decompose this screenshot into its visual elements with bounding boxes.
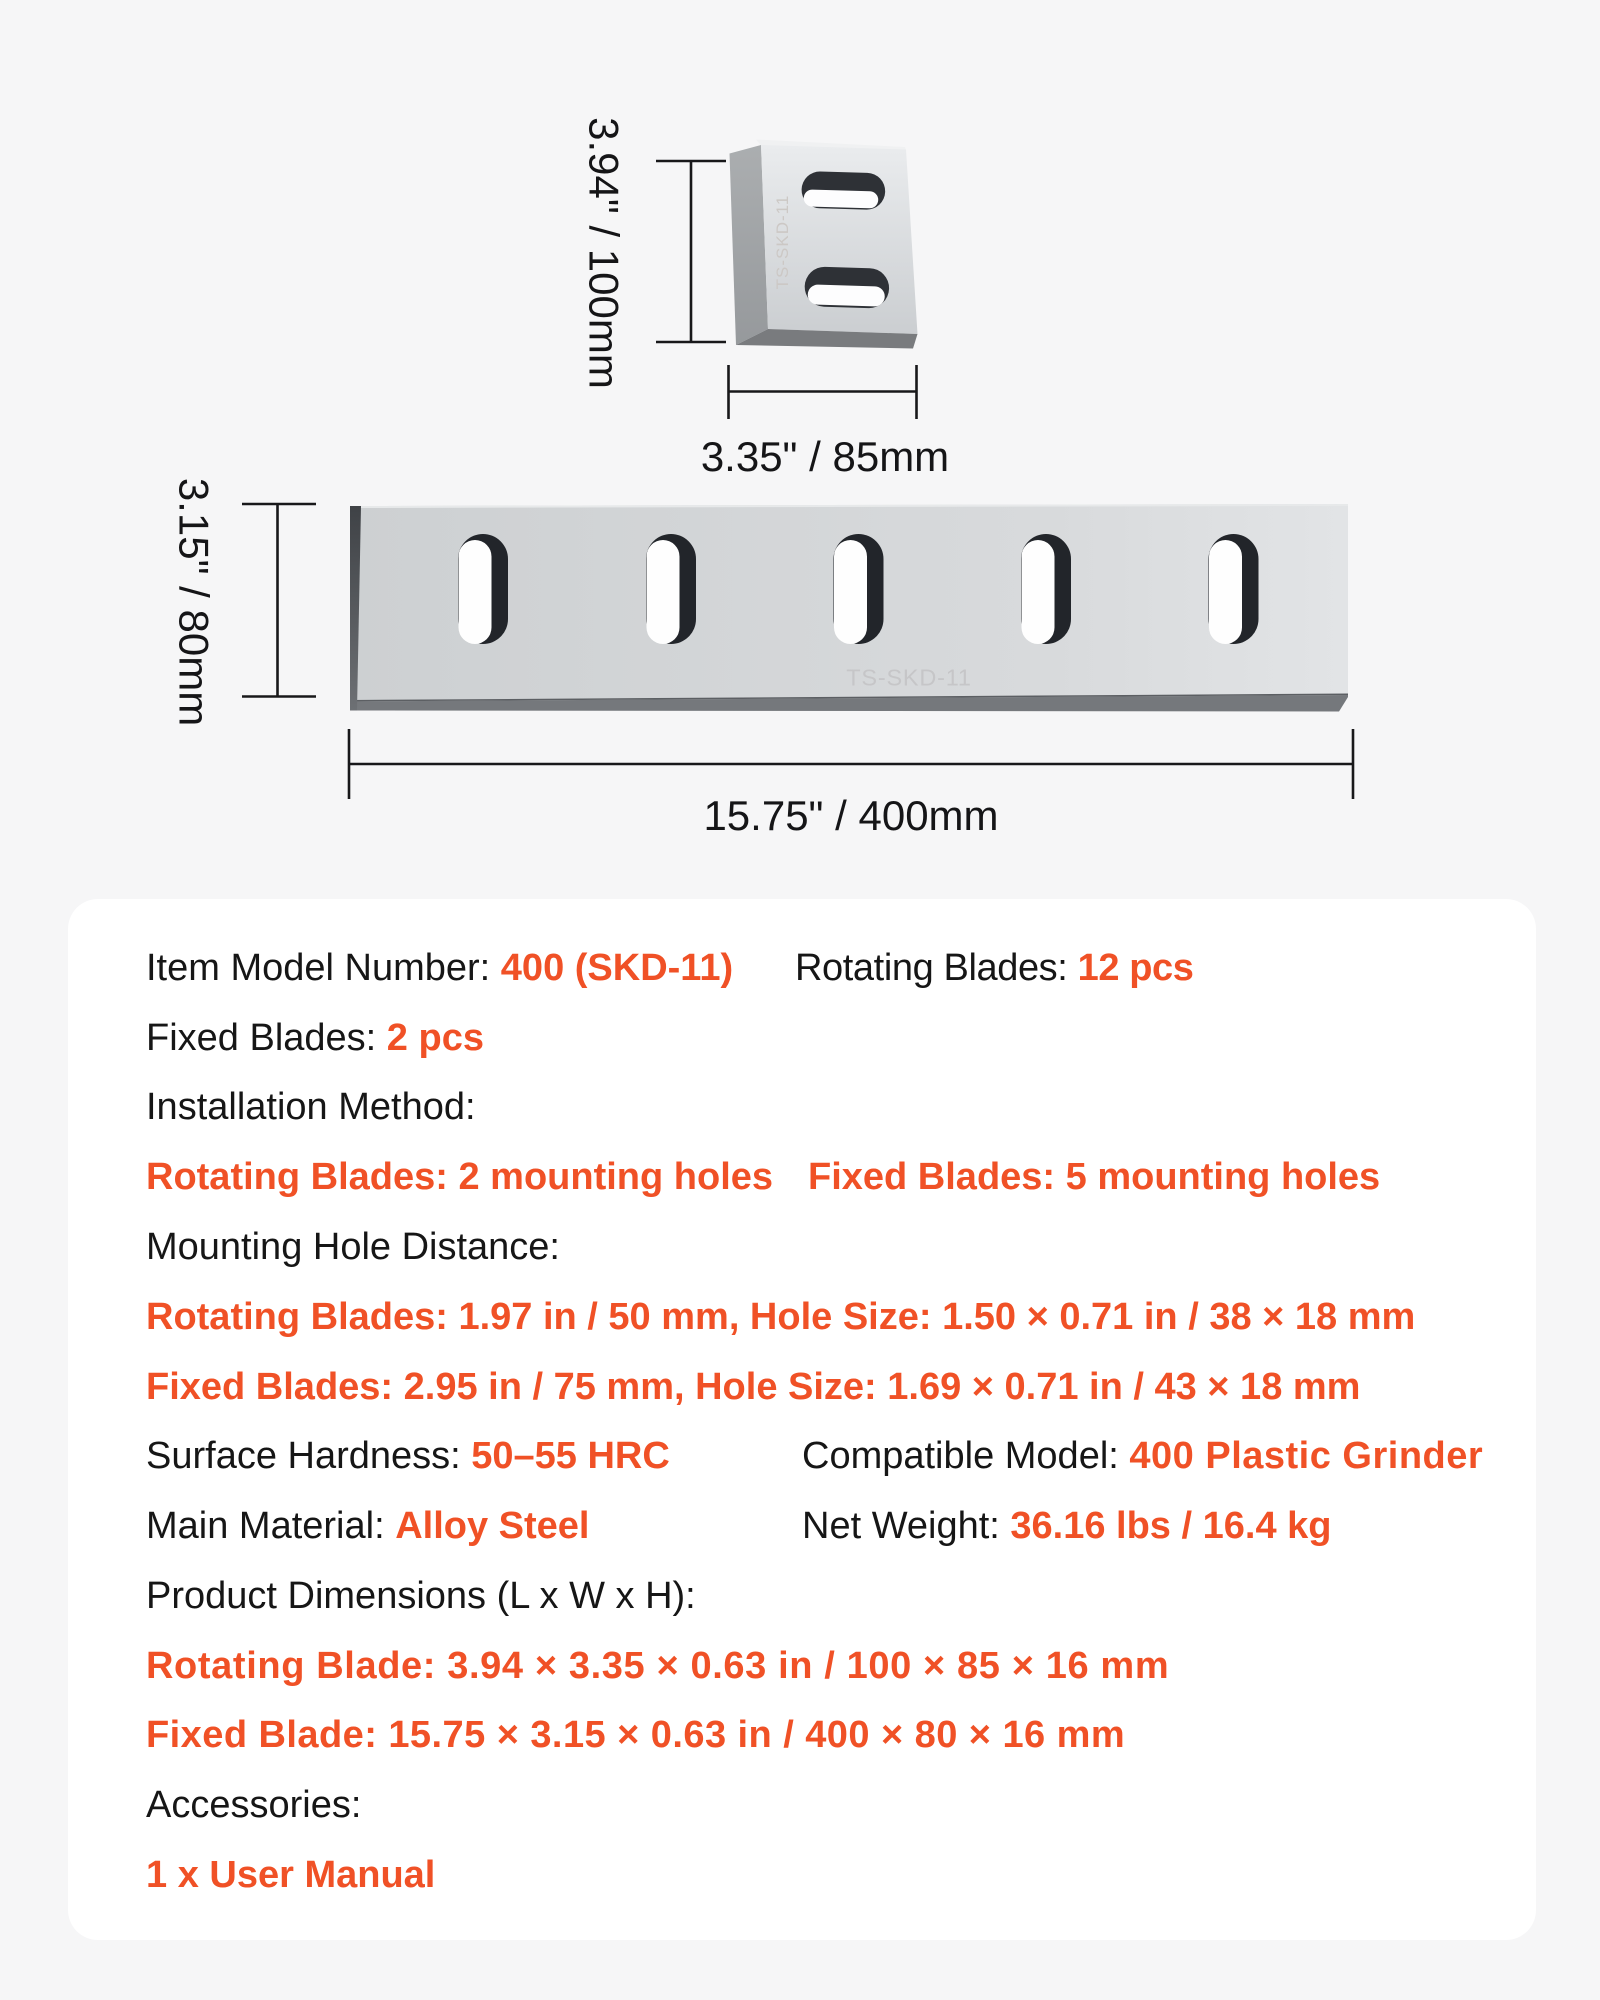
svg-text:3.15" / 80mm: 3.15" / 80mm <box>171 478 218 726</box>
svg-text:3.35" / 85mm: 3.35" / 85mm <box>701 433 949 480</box>
svg-text:3.94" / 100mm: 3.94" / 100mm <box>581 117 628 389</box>
svg-text:TS-SKD-11: TS-SKD-11 <box>773 195 792 290</box>
svg-text:TS-SKD-11: TS-SKD-11 <box>846 665 972 691</box>
svg-text:15.75" / 400mm: 15.75" / 400mm <box>703 792 998 839</box>
